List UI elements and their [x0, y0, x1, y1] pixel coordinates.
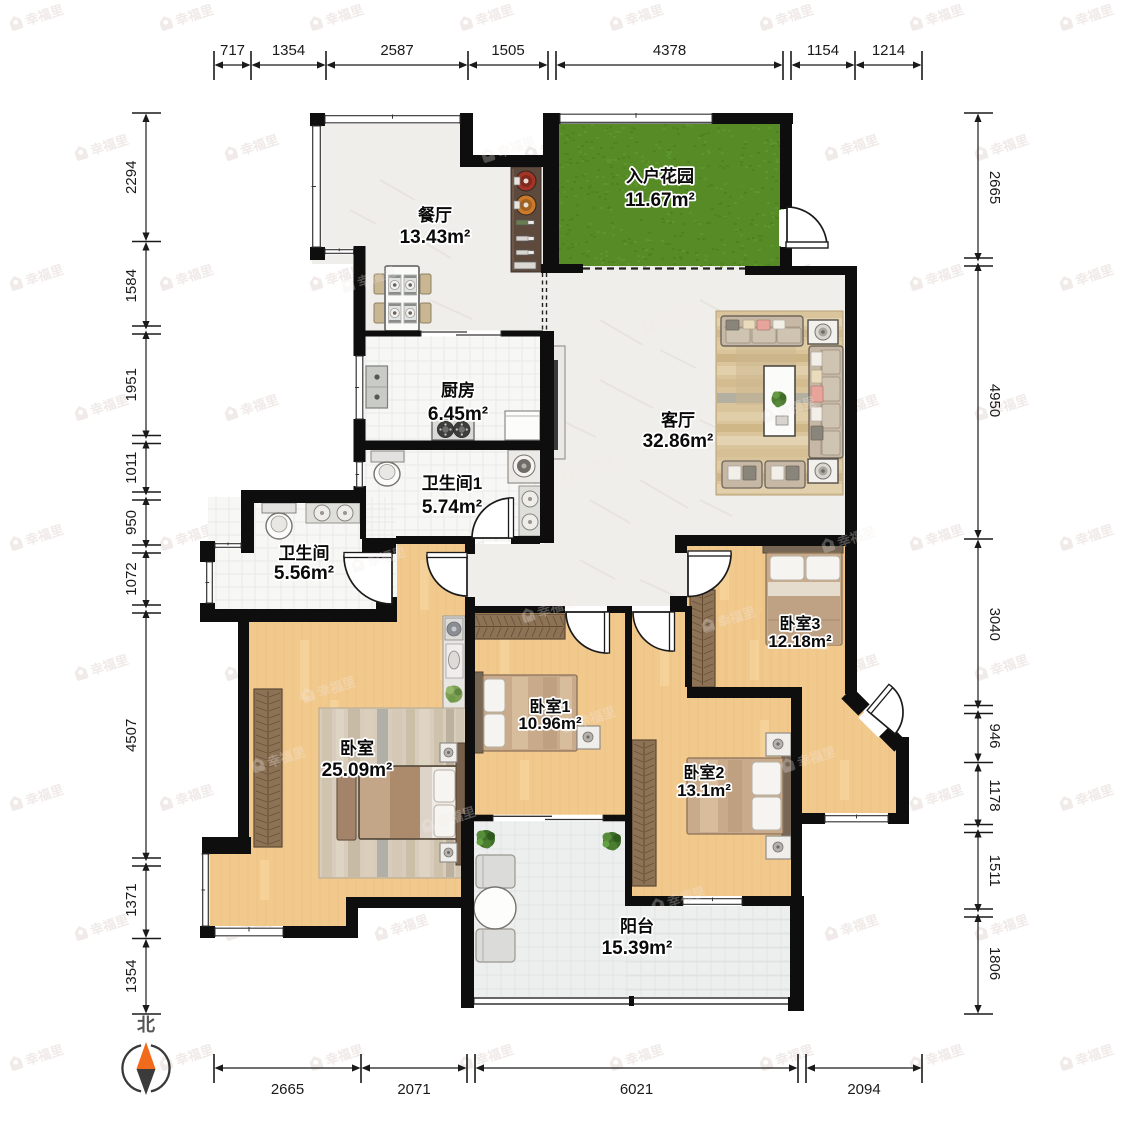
svg-text:15.39m²: 15.39m²: [602, 938, 673, 959]
svg-text:1354: 1354: [272, 42, 305, 59]
svg-text:卫生间: 卫生间: [279, 543, 330, 563]
svg-text:客厅: 客厅: [660, 410, 695, 430]
svg-text:1154: 1154: [807, 42, 839, 59]
svg-text:1371: 1371: [123, 883, 140, 916]
svg-text:13.43m²: 13.43m²: [400, 227, 471, 248]
svg-text:12.18m²: 12.18m²: [768, 632, 832, 651]
svg-text:2587: 2587: [380, 42, 413, 59]
svg-text:717: 717: [220, 42, 245, 59]
svg-text:餐厅: 餐厅: [418, 205, 452, 225]
svg-text:1354: 1354: [123, 960, 140, 993]
svg-text:卧室: 卧室: [340, 738, 374, 758]
svg-text:2294: 2294: [123, 161, 140, 194]
svg-text:11.67m²: 11.67m²: [625, 190, 695, 211]
svg-text:卧室2: 卧室2: [684, 763, 725, 782]
svg-text:1511: 1511: [986, 855, 1003, 887]
svg-text:5.74m²: 5.74m²: [422, 497, 482, 518]
svg-text:1806: 1806: [986, 947, 1003, 980]
svg-text:6021: 6021: [620, 1081, 653, 1098]
svg-text:4378: 4378: [653, 42, 686, 59]
svg-text:1072: 1072: [123, 562, 140, 595]
svg-text:1178: 1178: [986, 779, 1003, 811]
svg-text:2665: 2665: [271, 1081, 304, 1098]
svg-text:4507: 4507: [123, 719, 140, 752]
svg-text:4950: 4950: [986, 384, 1003, 417]
svg-text:946: 946: [986, 723, 1003, 748]
svg-text:13.1m²: 13.1m²: [677, 781, 731, 800]
svg-text:1011: 1011: [123, 452, 140, 484]
svg-text:1214: 1214: [872, 42, 905, 59]
svg-text:2665: 2665: [986, 171, 1003, 204]
svg-text:950: 950: [123, 510, 140, 535]
svg-text:5.56m²: 5.56m²: [274, 563, 334, 584]
svg-text:卫生间1: 卫生间1: [422, 473, 482, 493]
svg-text:3040: 3040: [986, 608, 1003, 641]
svg-text:2071: 2071: [397, 1081, 430, 1098]
svg-text:2094: 2094: [847, 1081, 880, 1098]
svg-text:1505: 1505: [491, 42, 524, 59]
svg-text:6.45m²: 6.45m²: [428, 404, 488, 425]
svg-text:25.09m²: 25.09m²: [322, 760, 393, 781]
svg-text:北: 北: [137, 1015, 155, 1035]
svg-text:1951: 1951: [123, 368, 140, 401]
svg-text:10.96m²: 10.96m²: [518, 714, 582, 733]
svg-text:厨房: 厨房: [441, 380, 475, 400]
svg-text:入户花园: 入户花园: [626, 166, 694, 186]
svg-text:卧室3: 卧室3: [780, 614, 821, 633]
svg-text:32.86m²: 32.86m²: [643, 431, 714, 452]
svg-text:阳台: 阳台: [620, 916, 654, 936]
svg-text:1584: 1584: [123, 269, 140, 302]
